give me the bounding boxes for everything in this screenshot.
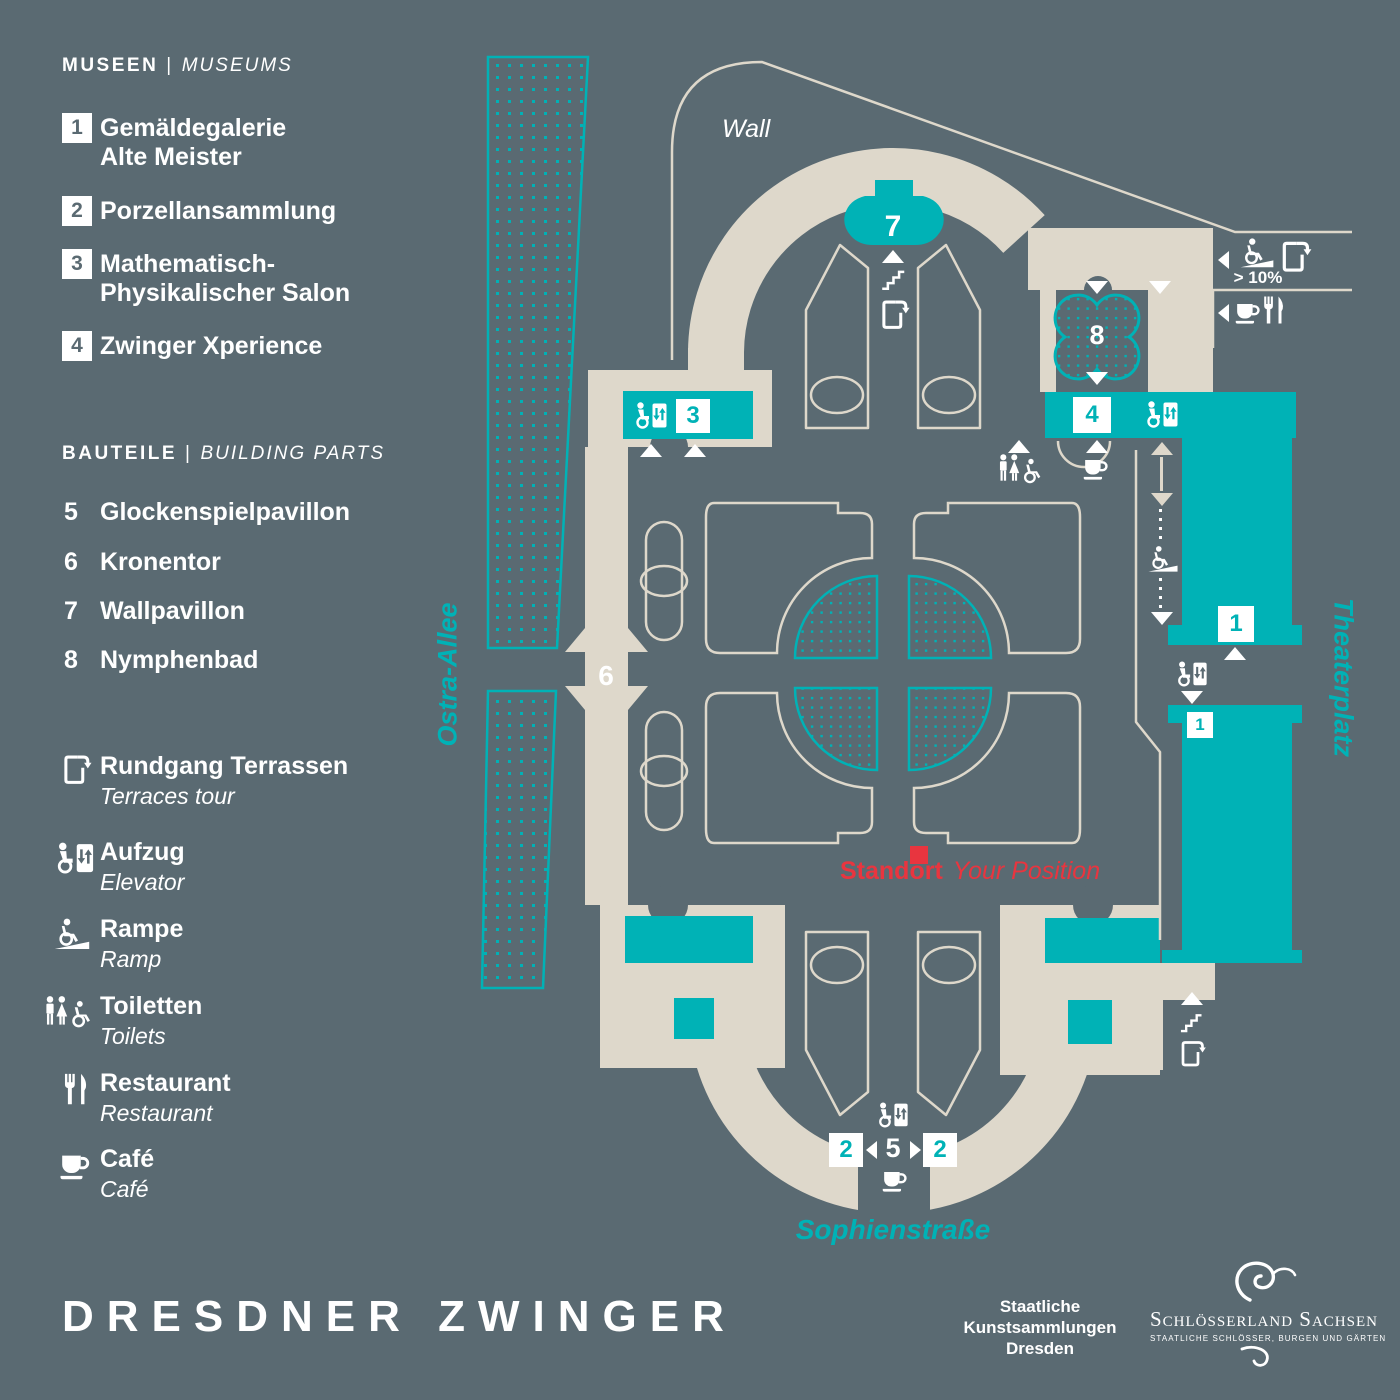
- wall-label: Wall: [722, 115, 770, 144]
- facility-restaurant-en: Restaurant: [100, 1100, 213, 1127]
- street-label-sophienstrasse: Sophienstraße: [778, 1214, 1008, 1246]
- legend-item-zwinger-xperience: Zwinger Xperience: [100, 332, 322, 361]
- arrow-left-icon: [866, 1141, 877, 1159]
- arrow-down-icon: [1181, 691, 1203, 704]
- flourish-icon: [1210, 1258, 1300, 1302]
- street-label-ostra-allee: Ostra-Allee: [433, 560, 464, 790]
- schloesserland-subtitle: STAATLICHE SCHLÖSSER, BURGEN UND GÄRTEN: [1150, 1334, 1360, 1343]
- building-porzellan-east: [1045, 918, 1160, 963]
- legend-num-7: 7: [64, 597, 78, 626]
- terraces-tour-icon: [876, 297, 912, 333]
- skd-logo: Staatliche Kunstsammlungen Dresden: [950, 1296, 1130, 1359]
- facility-ramp-de: Rampe: [100, 915, 183, 944]
- page-title: DRESDNER ZWINGER: [62, 1292, 737, 1342]
- elevator-icon: [1175, 659, 1209, 688]
- facility-toilets-de: Toiletten: [100, 992, 202, 1021]
- ramp-icon: [1146, 544, 1180, 574]
- legend-badge-4: 4: [62, 331, 92, 361]
- header-separator: |: [166, 55, 173, 76]
- arrow-down-icon: [1086, 281, 1108, 294]
- arrow-up-icon: [1151, 442, 1173, 455]
- building-gemaeldegalerie-lower: [1182, 705, 1292, 963]
- arrow-up-icon: [882, 250, 904, 263]
- legend-item-kronentor: Kronentor: [100, 548, 221, 577]
- building-parts-header-en: BUILDING PARTS: [200, 443, 385, 464]
- legend-badge-1: 1: [62, 113, 92, 143]
- legend-num-8: 8: [64, 646, 78, 675]
- garden-strip-north: [488, 57, 588, 648]
- facility-elevator-en: Elevator: [100, 869, 184, 896]
- museums-section-header: MUSEEN|MUSEUMS: [62, 55, 293, 77]
- courtyard-parterres: [706, 503, 1080, 843]
- arrow-up-icon: [640, 444, 662, 457]
- building-parts-section-header: BAUTEILE|BUILDING PARTS: [62, 443, 385, 465]
- elevator-icon: [54, 840, 96, 875]
- ramp-icon: [1238, 236, 1276, 270]
- arrow-down-icon: [1151, 612, 1173, 625]
- facility-restaurant-de: Restaurant: [100, 1069, 231, 1098]
- cafe-icon: [1080, 452, 1110, 482]
- restaurant-icon: [58, 1070, 94, 1108]
- street-label-theaterplatz: Theaterplatz: [1328, 563, 1359, 793]
- legend-item-math-salon: Mathematisch- Physikalischer Salon: [100, 250, 350, 308]
- facility-terraces-en: Terraces tour: [100, 783, 235, 810]
- legend-badge-3: 3: [62, 249, 92, 279]
- legend-num-6: 6: [64, 548, 78, 577]
- building-parts-header-de: BAUTEILE: [62, 443, 177, 464]
- kronentor-flare-north: [565, 628, 648, 652]
- cafe-icon: [879, 1164, 909, 1194]
- position-label: StandortYour Position: [840, 857, 1100, 886]
- restaurant-icon: [1258, 293, 1290, 327]
- legend-item-wallpavillon: Wallpavillon: [100, 597, 245, 626]
- arrow-down-icon: [1149, 281, 1171, 294]
- stairs-icon: [1177, 1007, 1205, 1035]
- legend-item-line: Gemäldegalerie: [100, 114, 286, 143]
- map-marker-glockenspielpavillon: 5: [879, 1133, 907, 1164]
- route-dotted-line: [1159, 509, 1162, 541]
- legend-badge-2: 2: [62, 196, 92, 226]
- zwinger-visitor-map: Wall Ostra-Allee Theaterplatz Sophienstr…: [0, 0, 1400, 1400]
- nymphenbad-upper-terrace: [1028, 228, 1213, 290]
- skd-logo-line: Dresden: [950, 1338, 1130, 1359]
- schloesserland-name: Schlösserland Sachsen: [1150, 1307, 1360, 1332]
- courtyard-lawns: [795, 576, 991, 770]
- skd-logo-line: Staatliche: [950, 1296, 1130, 1317]
- legend-item-gemaeldegalerie: Gemäldegalerie Alte Meister: [100, 114, 286, 172]
- map-marker-gemaeldegalerie-upper: 1: [1218, 606, 1254, 642]
- legend-item-line: Mathematisch-: [100, 250, 350, 279]
- building-gemaeldegalerie-foot: [1162, 950, 1302, 963]
- legend-item-nymphenbad: Nymphenbad: [100, 646, 258, 675]
- nymphenbad-west-wall: [1040, 285, 1056, 392]
- legend-item-line: Physikalischer Salon: [100, 279, 350, 308]
- pavilion-block-sw: [674, 998, 714, 1039]
- fountain-basins: [641, 522, 687, 830]
- facility-cafe-en: Café: [100, 1176, 149, 1203]
- schloesserland-logo: Schlösserland Sachsen STAATLICHE SCHLÖSS…: [1150, 1258, 1360, 1376]
- legend-item-glockenspielpavillon: Glockenspielpavillon: [100, 498, 350, 527]
- map-marker-porzellan-right: 2: [923, 1133, 957, 1167]
- toilets-icon: [996, 452, 1044, 486]
- toilets-icon: [42, 994, 94, 1030]
- terraces-tour-icon: [1176, 1038, 1208, 1070]
- arrow-down-icon: [1149, 372, 1171, 385]
- southeast-passage-stem: [1130, 1000, 1163, 1070]
- elevator-icon: [876, 1100, 910, 1129]
- skd-logo-line: Kunstsammlungen: [950, 1317, 1130, 1338]
- map-marker-porzellan-left: 2: [829, 1133, 863, 1167]
- ramp-icon: [52, 916, 92, 952]
- facility-toilets-en: Toilets: [100, 1023, 166, 1050]
- arrow-up-icon: [1181, 992, 1203, 1005]
- map-marker-zwinger-xperience: 4: [1073, 397, 1111, 433]
- terraces-tour-icon: [1276, 238, 1314, 276]
- map-marker-math-salon: 3: [676, 399, 710, 433]
- position-label-en: Your Position: [953, 857, 1100, 885]
- legend-item-line: Alte Meister: [100, 143, 286, 172]
- map-marker-nymphenbad: 8: [1080, 320, 1114, 351]
- elevator-icon: [633, 400, 669, 430]
- route-line: [1160, 457, 1163, 491]
- facility-elevator-de: Aufzug: [100, 838, 185, 867]
- facility-ramp-en: Ramp: [100, 946, 161, 973]
- arrow-up-icon: [684, 444, 706, 457]
- facility-cafe-de: Café: [100, 1145, 154, 1174]
- header-separator: |: [185, 443, 192, 464]
- pavilion-block-se: [1068, 1000, 1112, 1044]
- building-porzellan-west: [625, 916, 753, 963]
- arrow-down-icon: [1151, 493, 1173, 506]
- cafe-icon: [56, 1146, 92, 1182]
- stairs-icon: [878, 263, 908, 293]
- arrow-right-icon: [910, 1141, 921, 1159]
- terraces-tour-icon: [58, 752, 94, 788]
- arrow-down-icon: [1086, 372, 1108, 385]
- museums-header-en: MUSEUMS: [182, 55, 293, 76]
- arrow-left-icon: [1218, 304, 1229, 322]
- legend-num-5: 5: [64, 498, 78, 527]
- route-dotted-line: [1159, 578, 1162, 610]
- arrow-up-icon: [1224, 647, 1246, 660]
- garden-strip-south: [482, 691, 556, 988]
- position-label-de: Standort: [840, 857, 943, 885]
- arrow-left-icon: [1218, 251, 1229, 269]
- museums-header-de: MUSEEN: [62, 55, 158, 76]
- elevator-icon: [1144, 399, 1180, 429]
- map-marker-gemaeldegalerie-lower: 1: [1187, 712, 1213, 738]
- flourish-small-icon: [1230, 1345, 1280, 1371]
- building-gemaeldegalerie-upper: [1182, 438, 1292, 626]
- map-marker-wallpavillon: 7: [873, 210, 913, 244]
- map-marker-kronentor: 6: [592, 660, 620, 692]
- facility-terraces-de: Rundgang Terrassen: [100, 752, 348, 781]
- legend-item-porzellansammlung: Porzellansammlung: [100, 197, 336, 226]
- route-dotted-line: [1159, 298, 1162, 370]
